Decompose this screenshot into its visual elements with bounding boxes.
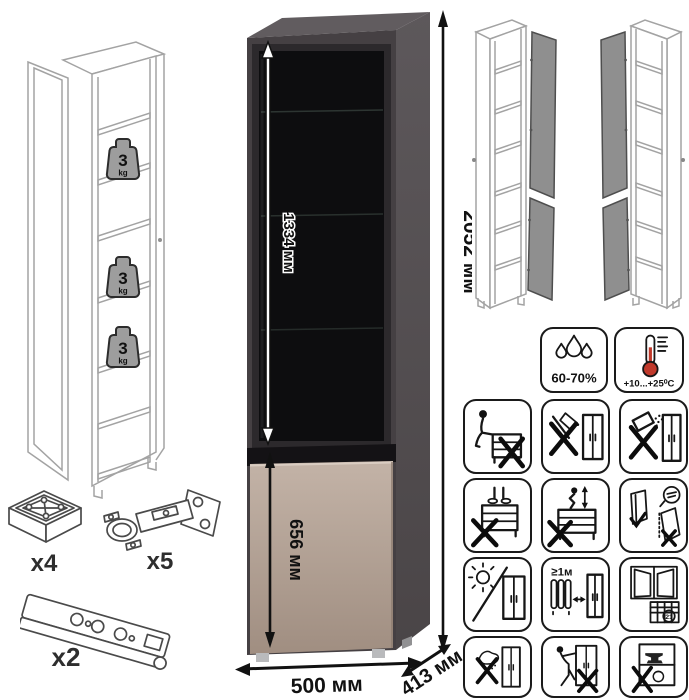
- do-not-climb-icon: [546, 483, 606, 549]
- lower-door: [250, 461, 393, 654]
- warning-box: [619, 399, 688, 474]
- humidity-label: 60-70%: [551, 371, 597, 386]
- warning-box: 21: [619, 557, 688, 632]
- warning-box: [619, 478, 688, 553]
- warning-box: [619, 636, 688, 698]
- temperature-care-box: +10...+25⁰C: [614, 327, 684, 393]
- open-door-panels: [528, 32, 556, 300]
- heat-distance-label: ≥1м: [551, 566, 572, 578]
- warning-box: [463, 399, 532, 474]
- foot-hardware-icon: [4, 482, 86, 558]
- lower-door-height-label: 656 мм: [286, 519, 306, 581]
- inner-height-label: 1334 мм: [280, 213, 297, 273]
- warning-box: [463, 557, 532, 632]
- do-not-sit-icon: [468, 404, 528, 470]
- temperature-label: +10...+25⁰C: [624, 378, 675, 389]
- humidity-care-box: 60-70%: [540, 327, 608, 393]
- do-not-stand-icon: [468, 483, 528, 549]
- main-cabinet-render: 1334 мм 2052 мм 656 мм 500 мм 41: [232, 0, 472, 700]
- cabinet-foot: [372, 649, 385, 658]
- dimension-depth: 413 мм: [397, 644, 466, 700]
- warning-box: [541, 478, 610, 553]
- humidity-icon: 60-70%: [543, 331, 605, 389]
- anchor-to-wall-icon: [624, 483, 684, 549]
- cabinet-body: [247, 12, 430, 662]
- avoid-sunlight-icon: [468, 562, 528, 628]
- warning-box: [463, 478, 532, 553]
- temperature-icon: +10...+25⁰C: [617, 331, 681, 389]
- do-not-overload-icon: [626, 640, 682, 694]
- cabinet-foot: [256, 653, 269, 662]
- exploded-unit: [472, 20, 556, 308]
- exploded-views-drawing: [468, 8, 689, 320]
- dimension-width: 500 мм: [235, 657, 423, 698]
- warning-box: [541, 636, 610, 698]
- do-not-use-wet-cloth-icon: [470, 640, 526, 694]
- ventilate-room-icon: 21: [624, 562, 684, 628]
- calendar-day-label: 21: [665, 613, 673, 620]
- warning-box: [541, 399, 610, 474]
- plinth-quantity-label: x2: [36, 642, 96, 673]
- warning-box: [463, 636, 532, 698]
- cabinet-side-panel: [396, 12, 430, 650]
- glass-door: [259, 51, 384, 441]
- assembly-diagram: 3 kg: [0, 0, 689, 700]
- do-not-use-sharp-tools-icon: [546, 404, 606, 470]
- do-not-spill-icon: [624, 404, 684, 470]
- dimension-total-height: 2052 мм: [438, 10, 472, 652]
- do-not-drag-icon: [548, 640, 604, 694]
- width-label: 500 мм: [290, 673, 363, 698]
- wireframe-carcass: [28, 42, 164, 498]
- warning-box: ≥1м: [541, 557, 610, 632]
- keep-from-heat-icon: ≥1м: [546, 562, 606, 628]
